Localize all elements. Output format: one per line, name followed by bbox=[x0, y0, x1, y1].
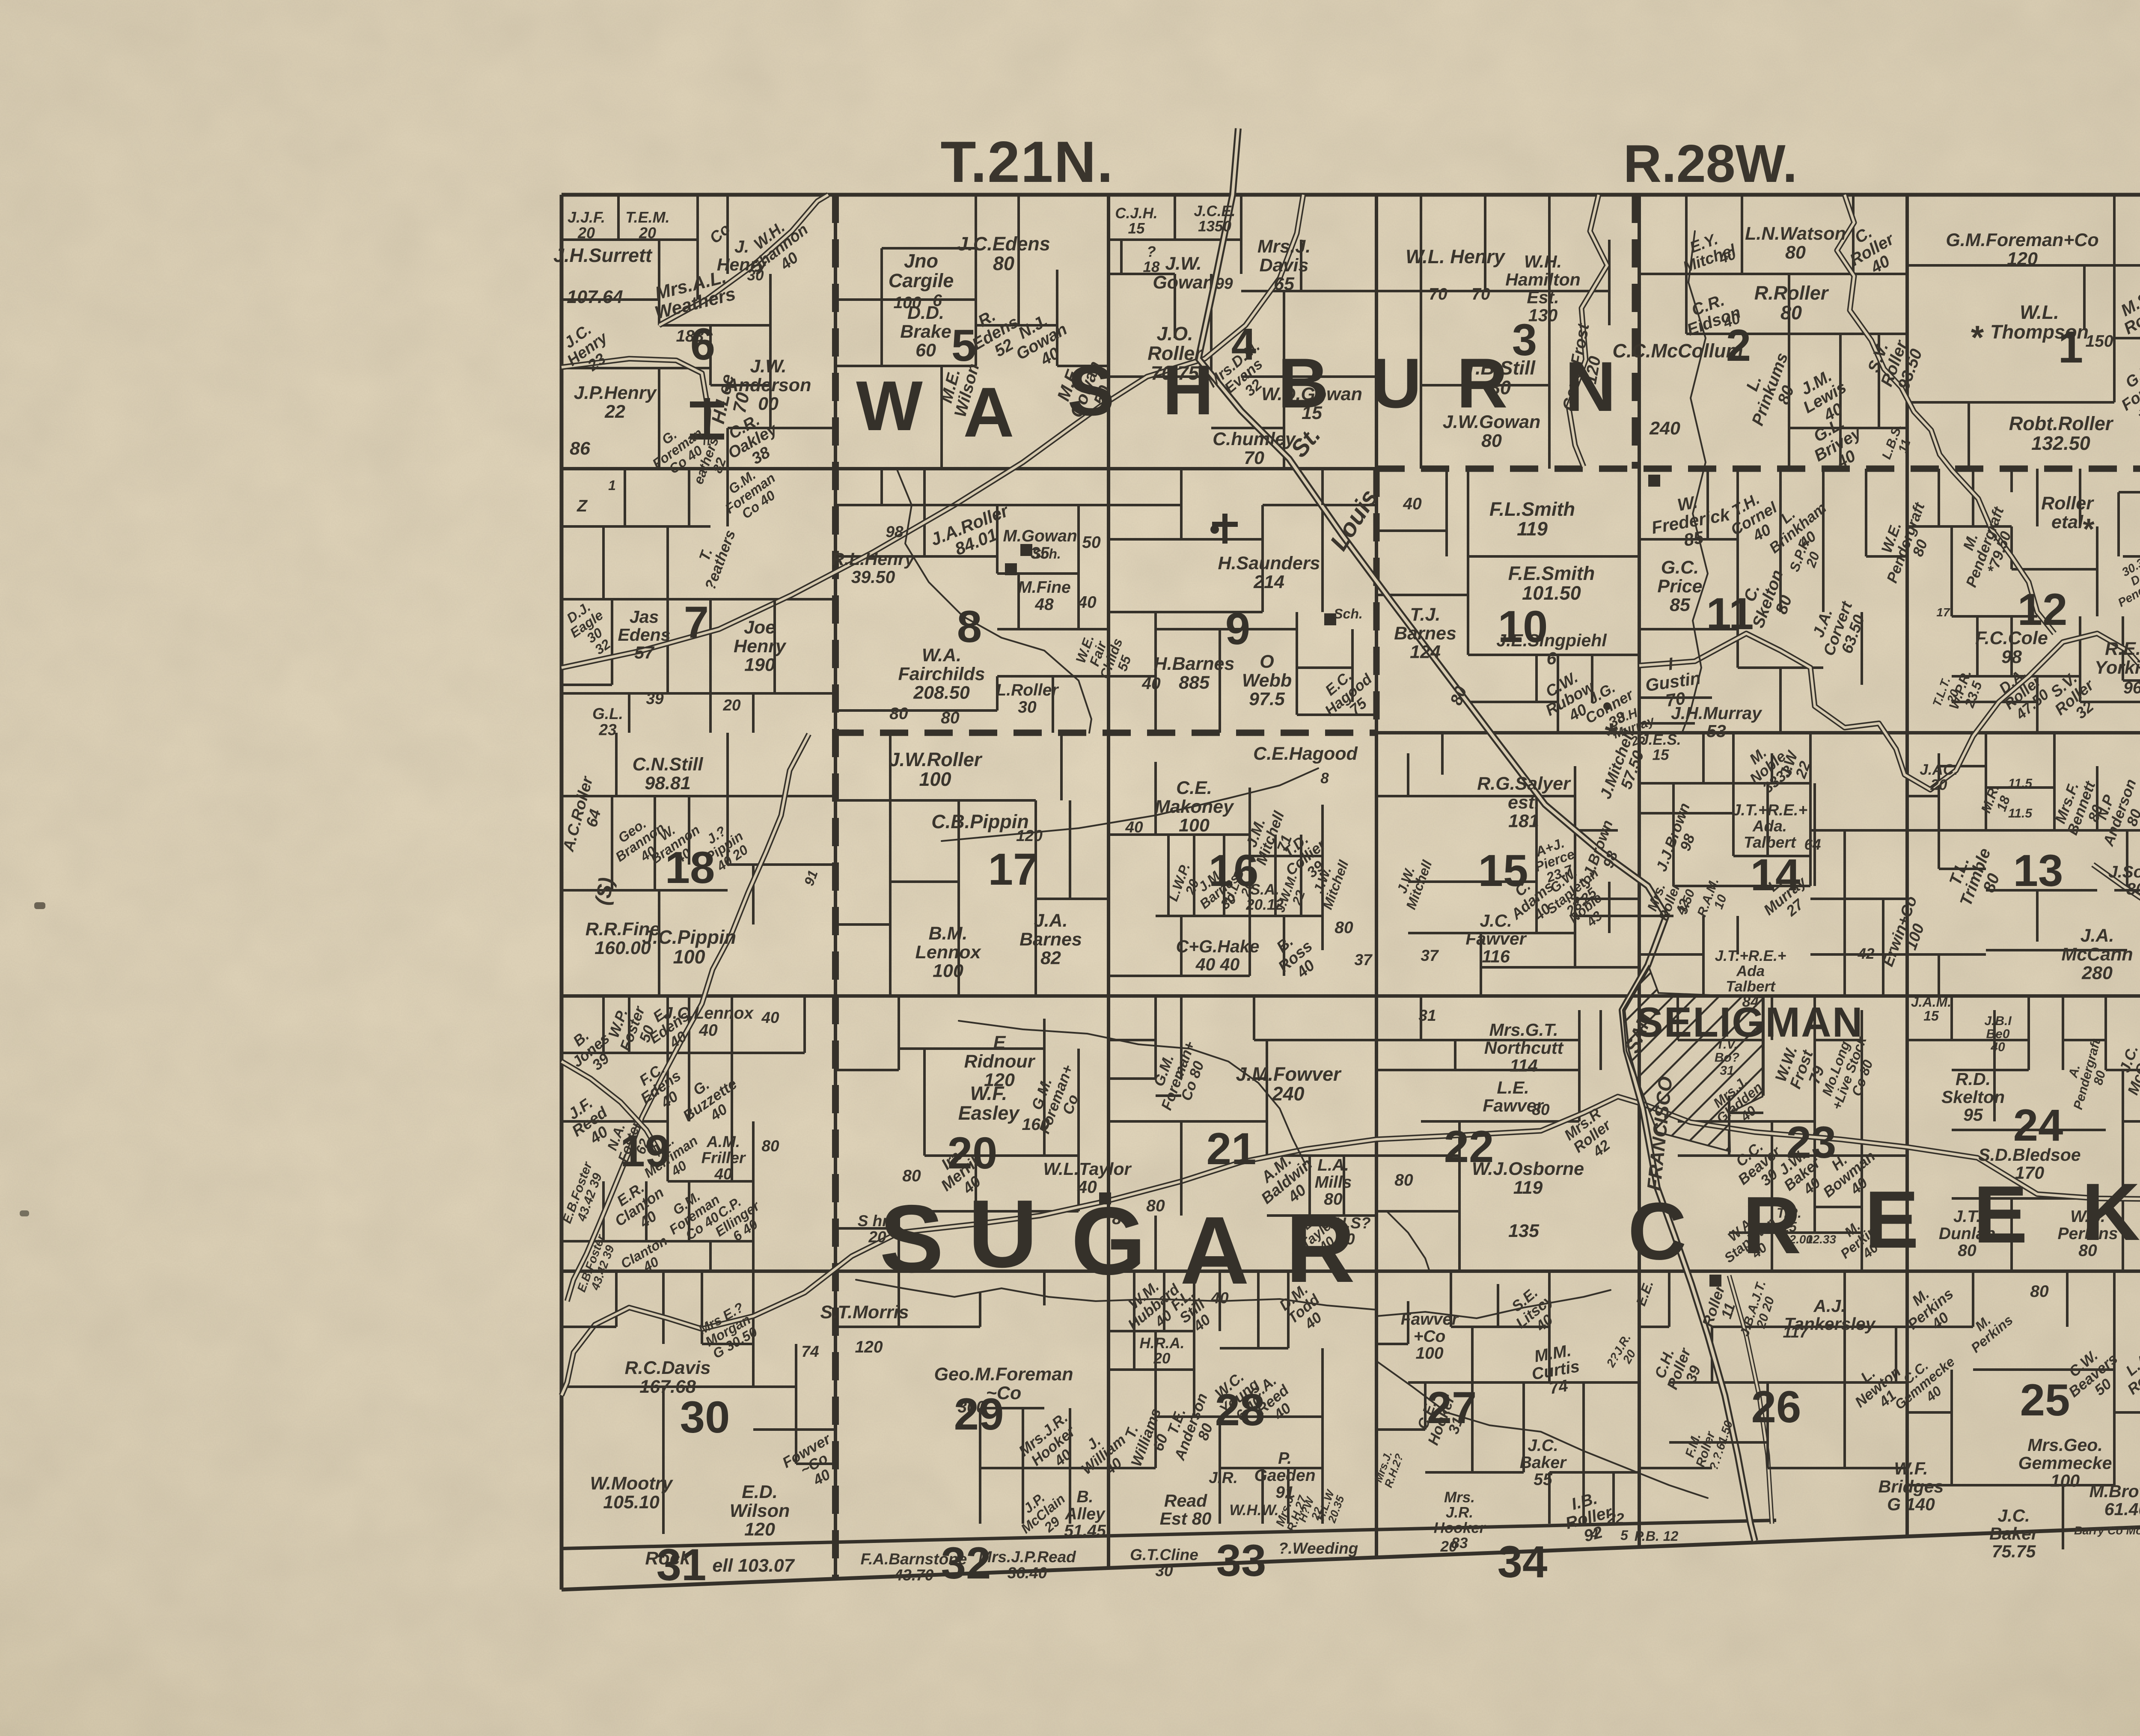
svg-text:S: S bbox=[1067, 351, 1115, 430]
svg-text:80: 80 bbox=[941, 709, 960, 727]
svg-text:23: 23 bbox=[1786, 1118, 1837, 1168]
svg-text:107.64: 107.64 bbox=[567, 287, 623, 307]
svg-text:R: R bbox=[1286, 1195, 1355, 1302]
svg-text:1: 1 bbox=[608, 478, 616, 493]
svg-text:U: U bbox=[1370, 344, 1421, 422]
svg-text:98: 98 bbox=[886, 523, 904, 541]
svg-text:?.Weeding: ?.Weeding bbox=[1278, 1540, 1358, 1557]
svg-text:11.5: 11.5 bbox=[2008, 806, 2033, 820]
svg-text:30: 30 bbox=[680, 1392, 730, 1442]
svg-text:22: 22 bbox=[1444, 1122, 1494, 1172]
svg-text:39: 39 bbox=[646, 690, 664, 707]
svg-text:2: 2 bbox=[1726, 321, 1751, 371]
svg-text:12: 12 bbox=[2018, 585, 2068, 635]
svg-text:80: 80 bbox=[761, 1137, 779, 1155]
svg-text:34: 34 bbox=[1498, 1537, 1548, 1587]
svg-text:240: 240 bbox=[1649, 418, 1680, 439]
svg-text:40: 40 bbox=[761, 1009, 779, 1026]
svg-text:80: 80 bbox=[1335, 919, 1353, 937]
svg-text:A: A bbox=[1180, 1196, 1250, 1304]
svg-text:J.R.: J.R. bbox=[1209, 1469, 1238, 1486]
svg-text:ell 103.07: ell 103.07 bbox=[712, 1555, 795, 1576]
svg-text:11: 11 bbox=[1706, 589, 1754, 639]
svg-text:10: 10 bbox=[1498, 602, 1548, 652]
svg-text:J.H.Surrett: J.H.Surrett bbox=[553, 244, 653, 266]
svg-text:40: 40 bbox=[1077, 593, 1097, 612]
svg-text:H: H bbox=[1162, 351, 1213, 429]
svg-text:3: 3 bbox=[1512, 315, 1537, 365]
svg-text:40: 40 bbox=[1125, 818, 1143, 836]
svg-text:32: 32 bbox=[941, 1538, 991, 1588]
svg-text:P.B. 12: P.B. 12 bbox=[1635, 1528, 1679, 1544]
svg-text:24: 24 bbox=[2013, 1100, 2063, 1150]
svg-text:120: 120 bbox=[1016, 827, 1043, 844]
svg-text:6: 6 bbox=[690, 319, 715, 369]
svg-text:Barry Co Mo.: Barry Co Mo. bbox=[2074, 1524, 2140, 1537]
svg-text:31: 31 bbox=[657, 1540, 707, 1590]
svg-text:25: 25 bbox=[2020, 1375, 2070, 1425]
svg-text:40: 40 bbox=[1403, 495, 1422, 513]
svg-text:17: 17 bbox=[988, 844, 1038, 895]
svg-text:4: 4 bbox=[1231, 319, 1256, 369]
svg-text:99: 99 bbox=[1215, 275, 1233, 292]
svg-text:70: 70 bbox=[1471, 285, 1490, 303]
svg-text:74: 74 bbox=[801, 1343, 819, 1360]
svg-text:22: 22 bbox=[1607, 1510, 1624, 1527]
svg-text:70: 70 bbox=[1429, 285, 1447, 303]
svg-text:J.C.E.1350: J.C.E.1350 bbox=[1194, 203, 1235, 235]
svg-text:13: 13 bbox=[2013, 846, 2063, 896]
svg-text:ReadEst 80: ReadEst 80 bbox=[1160, 1491, 1212, 1528]
svg-text:Z: Z bbox=[577, 497, 588, 515]
svg-text:(S): (S) bbox=[591, 876, 618, 907]
svg-text:5: 5 bbox=[1620, 1528, 1629, 1543]
svg-text:120: 120 bbox=[855, 1338, 883, 1356]
svg-text:K: K bbox=[2081, 1167, 2140, 1257]
svg-text:R: R bbox=[1456, 344, 1507, 422]
svg-text:37: 37 bbox=[1354, 951, 1373, 969]
svg-text:37: 37 bbox=[1421, 947, 1439, 964]
svg-text:SELIGMAN: SELIGMAN bbox=[1635, 999, 1863, 1046]
svg-text:80: 80 bbox=[1532, 1101, 1550, 1118]
svg-text:80: 80 bbox=[1394, 1171, 1413, 1189]
svg-text:80: 80 bbox=[1146, 1197, 1165, 1215]
svg-text:C: C bbox=[1628, 1186, 1686, 1277]
svg-text:5: 5 bbox=[951, 321, 976, 371]
svg-text:19: 19 bbox=[620, 1126, 670, 1176]
svg-text:86: 86 bbox=[570, 438, 591, 459]
svg-text:29: 29 bbox=[954, 1389, 1004, 1439]
svg-text:12.33: 12.33 bbox=[1806, 1233, 1836, 1246]
svg-text:135: 135 bbox=[1508, 1221, 1540, 1241]
svg-text:28: 28 bbox=[1215, 1385, 1265, 1435]
svg-text:7: 7 bbox=[684, 597, 709, 648]
svg-text:S.T.Morris: S.T.Morris bbox=[820, 1302, 909, 1323]
svg-text:80: 80 bbox=[902, 1167, 921, 1185]
svg-text:T.21N.: T.21N. bbox=[940, 129, 1114, 194]
svg-text:31: 31 bbox=[1418, 1007, 1436, 1024]
svg-text:16: 16 bbox=[1209, 846, 1259, 896]
svg-text:18: 18 bbox=[665, 843, 715, 893]
svg-text:26: 26 bbox=[1751, 1382, 1801, 1432]
svg-text:C.E.Hagood: C.E.Hagood bbox=[1253, 743, 1358, 764]
svg-text:9: 9 bbox=[1225, 604, 1250, 654]
svg-text:A: A bbox=[963, 373, 1014, 452]
svg-text:42: 42 bbox=[1858, 945, 1875, 962]
svg-text:U: U bbox=[968, 1180, 1038, 1287]
svg-text:50: 50 bbox=[1082, 533, 1101, 552]
svg-text:80: 80 bbox=[2030, 1282, 2049, 1301]
svg-text:150: 150 bbox=[2085, 332, 2113, 351]
svg-text:15: 15 bbox=[1478, 846, 1528, 896]
svg-text:W.H.W.: W.H.W. bbox=[1229, 1502, 1278, 1519]
svg-text:E: E bbox=[1974, 1169, 2028, 1260]
svg-text:Sch.: Sch. bbox=[1334, 606, 1363, 621]
svg-text:20: 20 bbox=[722, 696, 741, 714]
svg-text:64: 64 bbox=[1804, 836, 1821, 853]
svg-text:8: 8 bbox=[1320, 770, 1329, 787]
svg-text:4: 4 bbox=[1590, 1526, 1598, 1542]
svg-text:N: N bbox=[1565, 347, 1616, 426]
svg-text:80: 80 bbox=[889, 705, 908, 723]
svg-text:R.28W.: R.28W. bbox=[1623, 134, 1798, 193]
svg-text:W: W bbox=[856, 366, 923, 445]
svg-text:27: 27 bbox=[1427, 1383, 1477, 1433]
svg-text:1: 1 bbox=[2058, 322, 2083, 372]
svg-text:*: * bbox=[2083, 512, 2095, 546]
svg-text:11.5: 11.5 bbox=[2008, 776, 2033, 791]
svg-text:G: G bbox=[1071, 1187, 1146, 1295]
svg-text:33: 33 bbox=[1216, 1536, 1266, 1586]
svg-text:S: S bbox=[880, 1185, 944, 1293]
svg-text:117: 117 bbox=[1783, 1323, 1809, 1341]
svg-text:B: B bbox=[1278, 344, 1329, 422]
svg-text:E: E bbox=[1865, 1174, 1919, 1265]
svg-text:17: 17 bbox=[1936, 606, 1950, 619]
svg-text:C.C.McCollum: C.C.McCollum bbox=[1612, 340, 1743, 362]
svg-text:20: 20 bbox=[948, 1128, 998, 1178]
svg-text:W.L. Henry: W.L. Henry bbox=[1406, 246, 1506, 268]
svg-text:*: * bbox=[1971, 318, 1984, 356]
svg-text:R: R bbox=[1742, 1180, 1801, 1271]
svg-text:8: 8 bbox=[957, 602, 982, 652]
svg-text:C.B.Pippin: C.B.Pippin bbox=[931, 811, 1028, 832]
svg-text:20: 20 bbox=[1440, 1538, 1457, 1555]
svg-text:21: 21 bbox=[1207, 1124, 1257, 1174]
svg-text:14: 14 bbox=[1751, 850, 1801, 900]
svg-text:96.50: 96.50 bbox=[2123, 679, 2140, 697]
